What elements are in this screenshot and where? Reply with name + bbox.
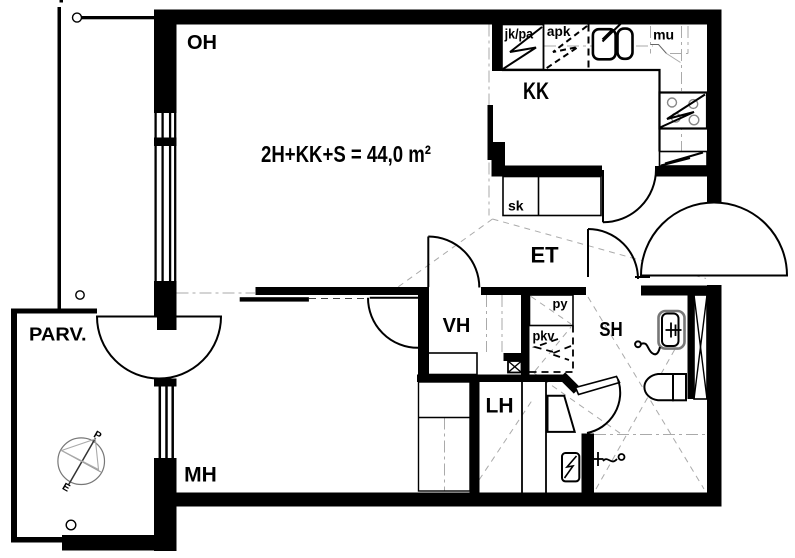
svg-text:SH: SH — [599, 319, 623, 341]
svg-text:jk/pa: jk/pa — [504, 27, 534, 42]
svg-text:sk: sk — [508, 197, 524, 213]
svg-text:LH: LH — [486, 394, 514, 417]
svg-text:2H+KK+S = 44,0 m²: 2H+KK+S = 44,0 m² — [261, 141, 431, 167]
svg-text:ET: ET — [530, 242, 559, 267]
svg-text:KK: KK — [523, 78, 549, 105]
svg-text:apk: apk — [547, 24, 571, 39]
svg-text:py: py — [553, 296, 569, 311]
svg-text:pkv: pkv — [533, 329, 555, 344]
svg-text:OH: OH — [187, 32, 217, 54]
svg-text:MH: MH — [184, 463, 217, 486]
svg-text:PARV.: PARV. — [29, 323, 87, 344]
svg-text:mu: mu — [653, 27, 674, 43]
svg-text:VH: VH — [443, 315, 471, 337]
